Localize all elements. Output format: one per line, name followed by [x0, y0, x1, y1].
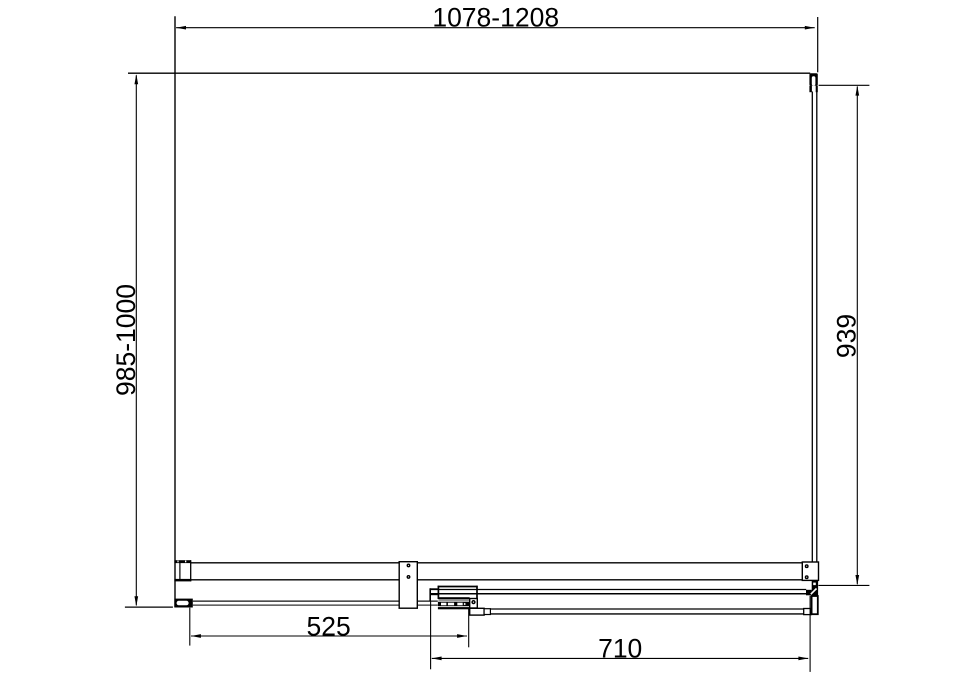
svg-text:710: 710 — [598, 633, 642, 663]
svg-text:1078-1208: 1078-1208 — [432, 3, 559, 33]
svg-text:985-1000: 985-1000 — [111, 284, 141, 396]
svg-text:525: 525 — [306, 611, 350, 641]
svg-text:939: 939 — [832, 314, 862, 358]
